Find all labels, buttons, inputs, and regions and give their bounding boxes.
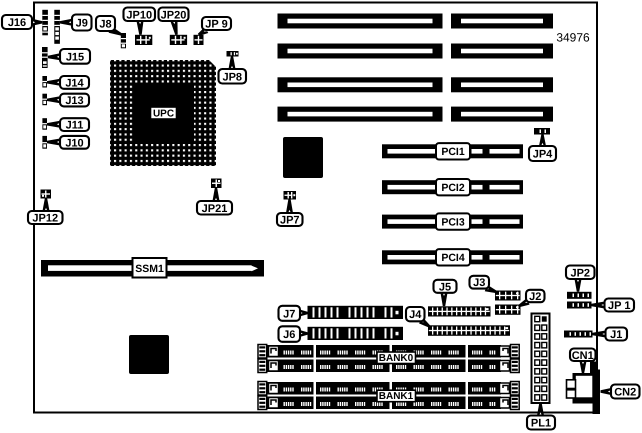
svg-text:J10: J10 [65, 137, 83, 149]
svg-text:J11: J11 [66, 120, 84, 132]
svg-text:JP7: JP7 [280, 215, 300, 227]
svg-text:J4: J4 [409, 309, 422, 321]
svg-text:JP21: JP21 [202, 203, 228, 215]
svg-text:BANK0: BANK0 [379, 353, 414, 364]
svg-text:UPC: UPC [153, 109, 174, 120]
svg-text:PCI4: PCI4 [441, 252, 465, 264]
svg-text:J16: J16 [8, 17, 26, 29]
svg-text:JP 9: JP 9 [205, 19, 227, 31]
svg-text:JP2: JP2 [570, 267, 590, 279]
svg-text:J7: J7 [283, 308, 295, 320]
svg-text:34976: 34976 [556, 31, 590, 45]
svg-text:J15: J15 [66, 51, 84, 63]
svg-text:J9: J9 [76, 18, 88, 30]
svg-text:J13: J13 [65, 95, 83, 107]
svg-text:JP20: JP20 [161, 9, 187, 21]
svg-text:PCI2: PCI2 [441, 182, 465, 194]
svg-text:BANK1: BANK1 [379, 391, 414, 402]
svg-text:JP10: JP10 [126, 9, 152, 21]
svg-text:J14: J14 [65, 77, 84, 89]
svg-text:J3: J3 [473, 277, 485, 289]
svg-text:PCI1: PCI1 [441, 146, 465, 158]
svg-text:JP8: JP8 [222, 71, 242, 83]
svg-text:J6: J6 [283, 329, 295, 341]
svg-text:CN1: CN1 [572, 350, 594, 362]
svg-text:PCI3: PCI3 [441, 216, 465, 228]
svg-text:J5: J5 [439, 281, 451, 293]
svg-text:PL1: PL1 [531, 418, 551, 430]
svg-text:CN2: CN2 [614, 387, 636, 399]
svg-text:JP 1: JP 1 [608, 300, 630, 312]
svg-text:J2: J2 [529, 291, 541, 303]
svg-text:SSM1: SSM1 [135, 263, 164, 275]
svg-text:JP12: JP12 [32, 213, 58, 225]
svg-text:J1: J1 [610, 329, 622, 341]
svg-text:JP4: JP4 [533, 149, 553, 161]
svg-text:J8: J8 [99, 19, 111, 31]
